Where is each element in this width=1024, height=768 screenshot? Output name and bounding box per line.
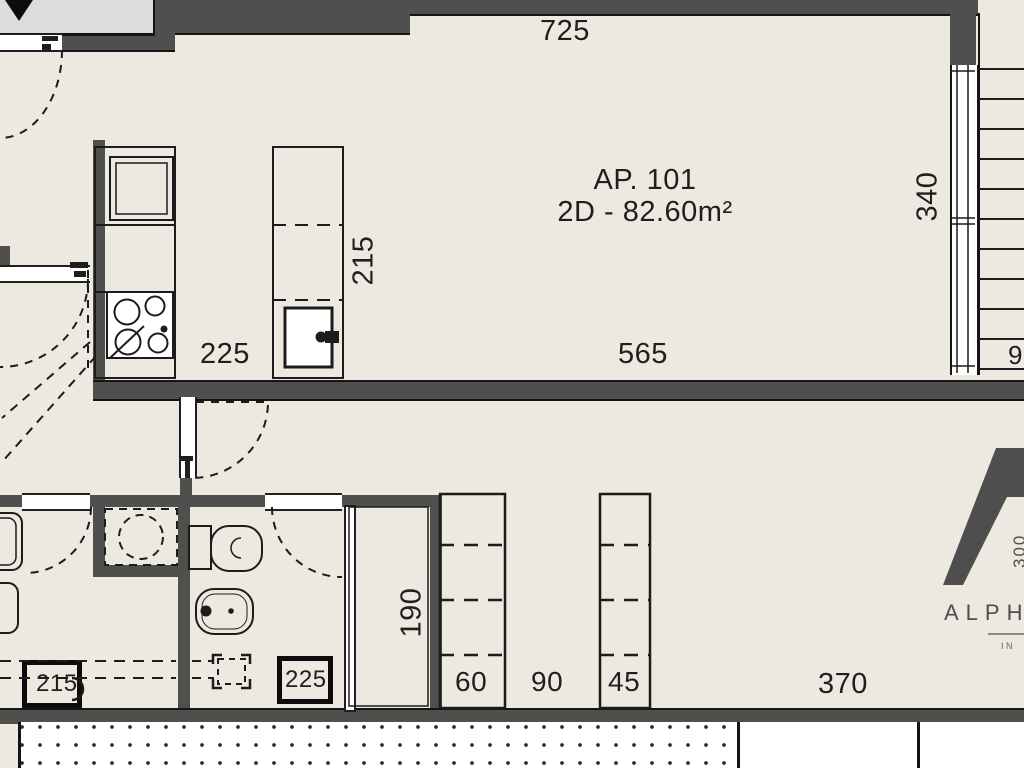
dim-right-cut: 9 — [1008, 340, 1023, 371]
left-fixture-2 — [0, 583, 18, 633]
washing-machine-drum — [119, 515, 163, 559]
dim-fixture-wc: 225 — [285, 666, 327, 694]
dim-living-width: 565 — [618, 338, 668, 371]
apartment-label: AP. 101 — [545, 164, 745, 197]
kitchen-cabinet — [110, 157, 173, 220]
logo-subtitle: IN — [1001, 641, 1015, 651]
sink-faucet-handle — [326, 332, 338, 342]
entry-door-arc — [0, 50, 62, 138]
dim-wardrobe-b: 45 — [608, 666, 640, 698]
toilet-tank — [189, 526, 211, 569]
washing-machine — [105, 509, 177, 565]
left-door-arc — [0, 279, 88, 367]
left-fixture-1-inner — [0, 518, 16, 565]
dim-closet-width: 190 — [396, 583, 429, 643]
bidet-drain — [202, 607, 211, 616]
floor-plan: 725 340 215 225 565 9 190 60 90 45 370 2… — [0, 0, 1024, 768]
bath-door-arc — [25, 507, 91, 573]
plan-linework — [0, 0, 1024, 768]
floor-drain — [218, 659, 245, 684]
dim-hall-gap: 90 — [531, 666, 563, 698]
logo-brand: ALPHA — [944, 600, 1024, 626]
logo-divider — [988, 633, 1024, 635]
wc-door-arc — [272, 507, 342, 577]
bidet-dot — [229, 609, 233, 613]
dim-kitchen-front: 225 — [200, 338, 250, 371]
toilet-bowl-arc — [231, 538, 241, 558]
sink-faucet — [317, 333, 326, 342]
left-door-diag2 — [2, 356, 96, 462]
left-door-diag1 — [2, 342, 90, 418]
dim-fixture-left: 215 — [36, 670, 78, 698]
toilet-bowl — [211, 526, 262, 571]
dim-wardrobe-a: 60 — [455, 666, 487, 698]
dim-island-depth: 215 — [348, 231, 381, 291]
hall-door-arc — [192, 402, 268, 478]
dim-bedroom-width: 370 — [818, 668, 868, 701]
area-label: 2D - 82.60m² — [545, 196, 745, 229]
hob-knob — [162, 327, 167, 332]
left-fixture-1 — [0, 513, 22, 570]
dim-top-width: 725 — [520, 15, 610, 48]
kitchen-cabinet-inner — [116, 163, 167, 214]
dim-right-height: 340 — [912, 167, 945, 227]
logo-side-mark: 300 — [1010, 508, 1024, 568]
